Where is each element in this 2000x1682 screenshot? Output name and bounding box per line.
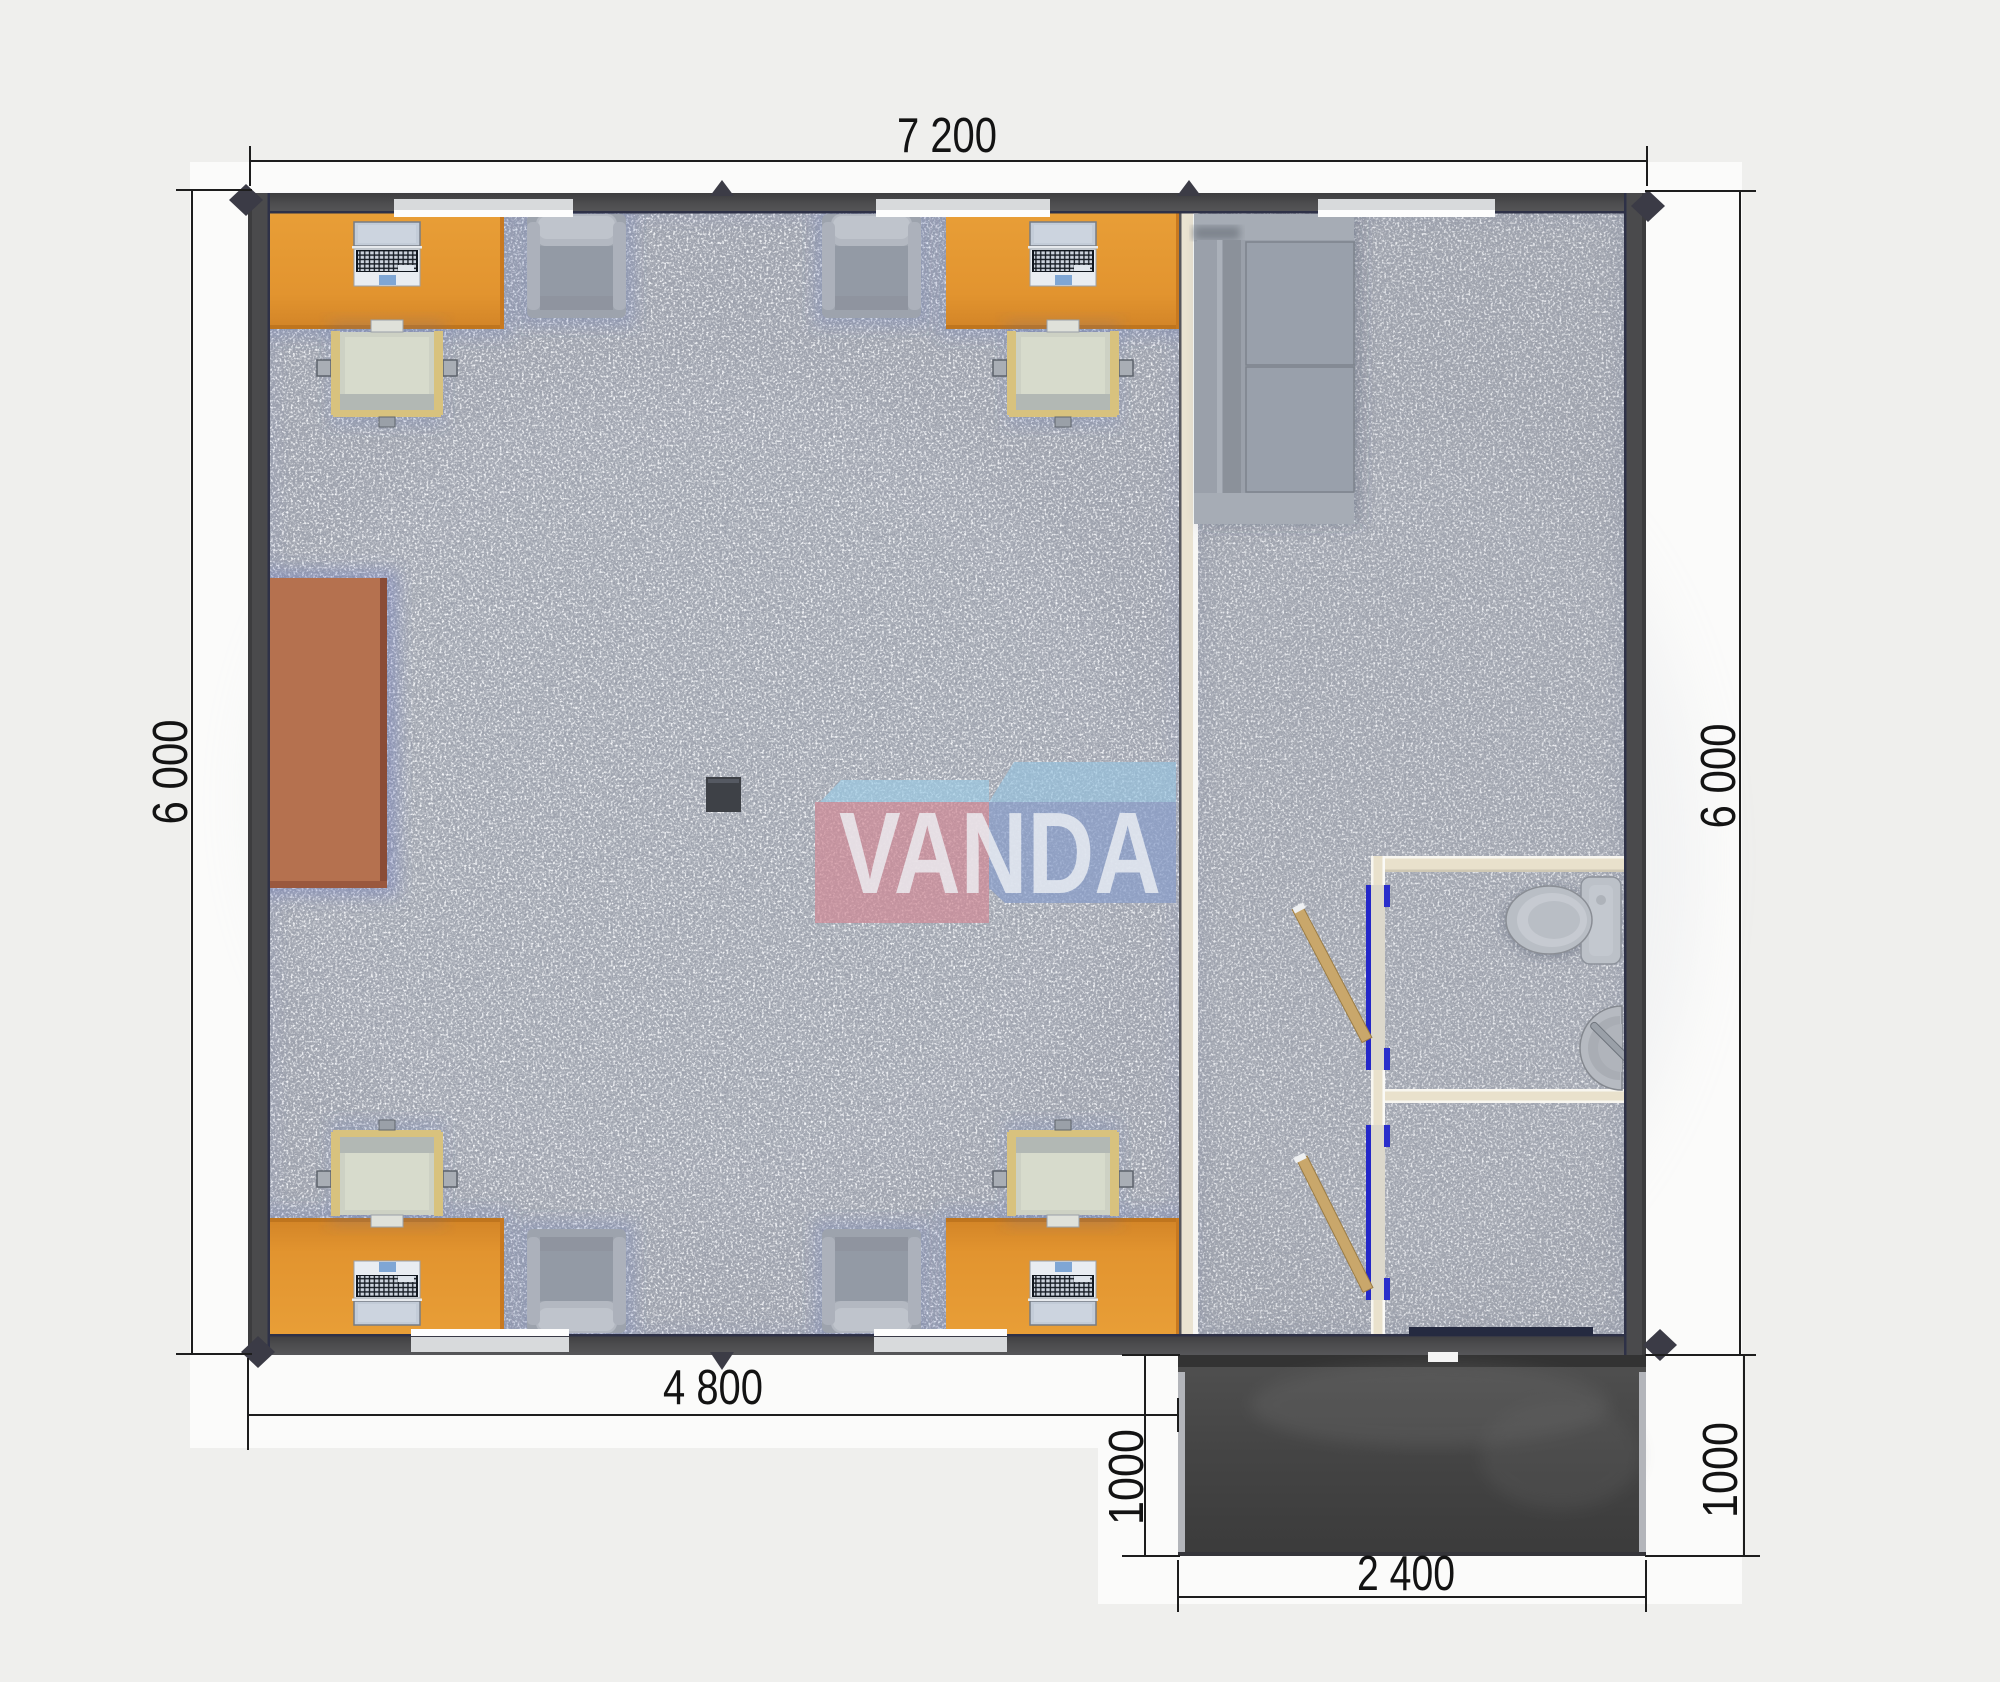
svg-text:2 400: 2 400 <box>1357 1547 1455 1601</box>
svg-text:6 000: 6 000 <box>144 720 198 825</box>
svg-text:6 000: 6 000 <box>1692 724 1746 829</box>
svg-text:VANDA: VANDA <box>839 788 1161 918</box>
svg-text:4 800: 4 800 <box>663 1361 763 1415</box>
svg-text:7 200: 7 200 <box>897 109 997 163</box>
svg-text:1000: 1000 <box>1100 1429 1154 1525</box>
svg-text:1000: 1000 <box>1694 1422 1748 1518</box>
